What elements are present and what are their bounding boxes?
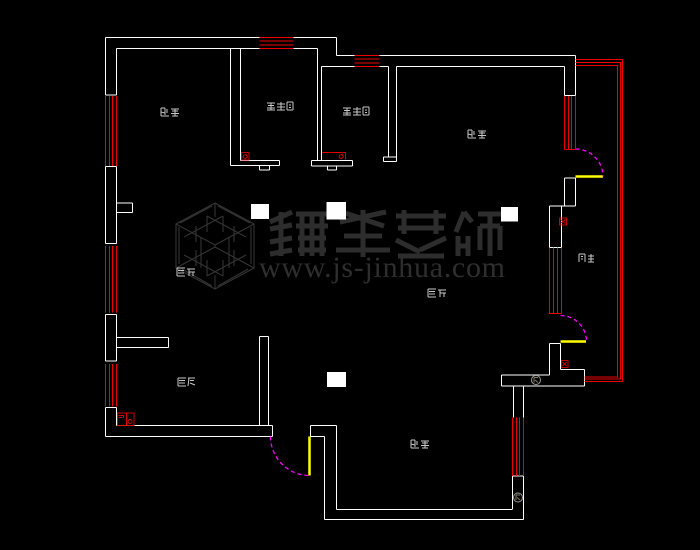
svg-text:www.js-jinhua.com: www.js-jinhua.com — [259, 251, 505, 284]
